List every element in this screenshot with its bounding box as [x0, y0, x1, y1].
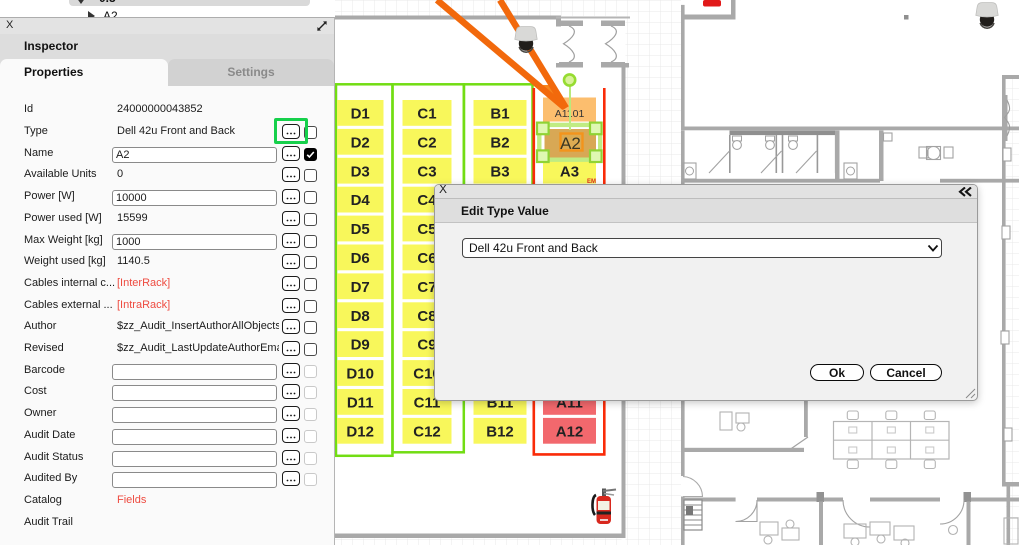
svg-text:C12: C12 [413, 423, 441, 440]
svg-text:A2: A2 [560, 134, 581, 153]
svg-text:D12: D12 [346, 423, 374, 440]
svg-text:B1: B1 [490, 106, 509, 123]
svg-text:D5: D5 [351, 221, 370, 238]
svg-text:D6: D6 [351, 250, 370, 267]
svg-text:D2: D2 [351, 134, 370, 151]
svg-text:D1: D1 [351, 106, 370, 123]
svg-text:B2: B2 [490, 134, 509, 151]
svg-text:C3: C3 [417, 163, 436, 180]
svg-text:B3: B3 [490, 163, 509, 180]
svg-text:B12: B12 [486, 423, 514, 440]
svg-text:D8: D8 [351, 308, 370, 325]
svg-text:C2: C2 [417, 134, 436, 151]
svg-text:A3: A3 [560, 163, 579, 180]
svg-text:D9: D9 [351, 337, 370, 354]
svg-text:D3: D3 [351, 163, 370, 180]
svg-text:D4: D4 [351, 192, 371, 209]
svg-text:D10: D10 [346, 366, 374, 383]
svg-text:D7: D7 [351, 279, 370, 296]
svg-text:A12: A12 [556, 423, 584, 440]
svg-text:D11: D11 [347, 395, 374, 412]
svg-text:C1: C1 [417, 106, 436, 123]
